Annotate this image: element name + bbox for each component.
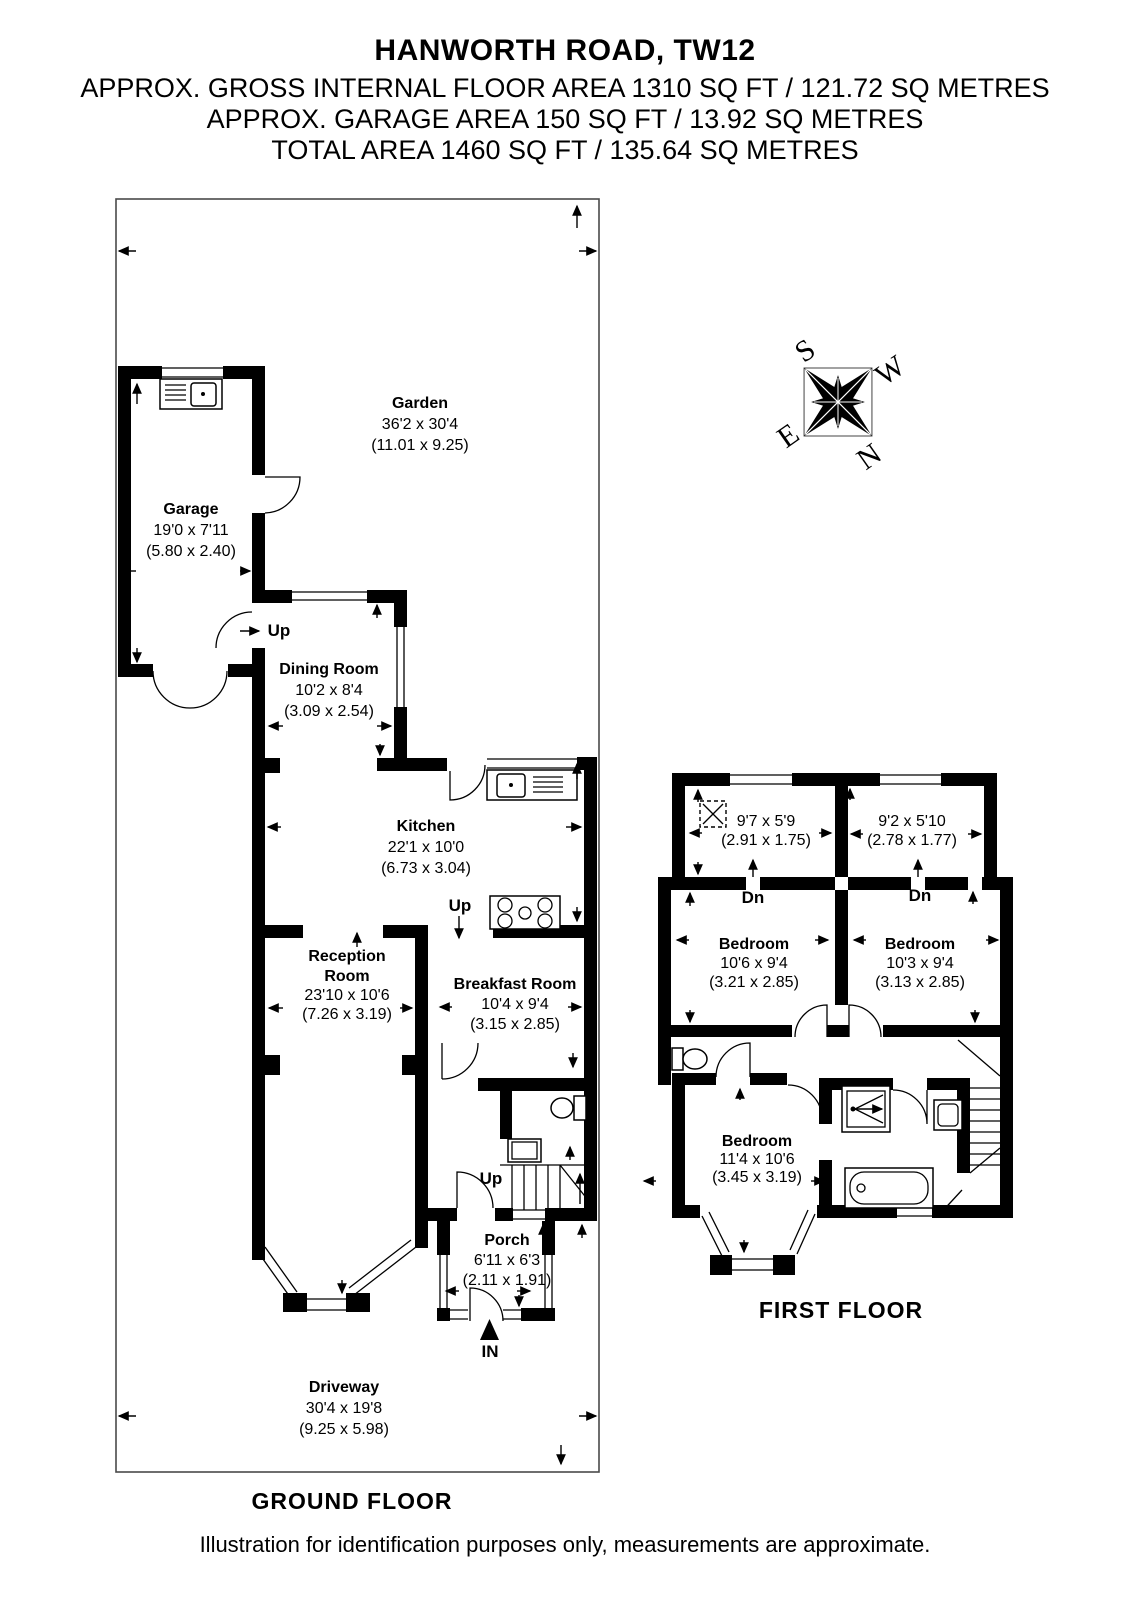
loft-right-dims-imperial: 9'2 x 5'10 bbox=[878, 813, 946, 830]
bedroom2-dims-imperial: 10'3 x 9'4 bbox=[886, 955, 954, 972]
bay-window-ground bbox=[252, 1240, 416, 1312]
compass-rose: S W E N bbox=[770, 332, 912, 476]
garage-dims-imperial: 19'0 x 7'11 bbox=[153, 522, 228, 539]
reception-room-dims-metric: (7.26 x 3.19) bbox=[302, 1006, 392, 1023]
loft-left-dims-imperial: 9'7 x 5'9 bbox=[737, 813, 796, 830]
bedroom2-dims-metric: (3.13 x 2.85) bbox=[875, 974, 965, 991]
first-floor-walls bbox=[658, 773, 1013, 1218]
header: HANWORTH ROAD, TW12 APPROX. GROSS INTERN… bbox=[80, 34, 1049, 165]
kitchen-sink-icon bbox=[487, 770, 577, 800]
garage-sink-icon bbox=[160, 379, 222, 409]
loft-right-dims-metric: (2.78 x 1.77) bbox=[867, 832, 957, 849]
porch-label: Porch bbox=[484, 1232, 529, 1249]
hallway-walls bbox=[442, 1043, 597, 1139]
page-title: HANWORTH ROAD, TW12 bbox=[374, 34, 755, 67]
garden-label: Garden bbox=[392, 395, 448, 412]
ground-floor-caption: GROUND FLOOR bbox=[251, 1488, 452, 1514]
bedroom2-label: Bedroom bbox=[885, 936, 955, 953]
reception-room-label-line2: Room bbox=[324, 968, 369, 985]
bay-window-first bbox=[702, 1210, 815, 1275]
reception-room-dims-imperial: 23'10 x 10'6 bbox=[304, 987, 389, 1004]
garage-dims-metric: (5.80 x 2.40) bbox=[146, 543, 236, 560]
garage-label: Garage bbox=[163, 501, 218, 518]
area-line-1: APPROX. GROSS INTERNAL FLOOR AREA 1310 S… bbox=[80, 73, 1049, 103]
first-floor-caption: FIRST FLOOR bbox=[759, 1297, 923, 1323]
bedroom1-label: Bedroom bbox=[719, 936, 789, 953]
floorplan-drawing: HANWORTH ROAD, TW12 APPROX. GROSS INTERN… bbox=[0, 0, 1131, 1600]
toilet-first-icon bbox=[672, 1048, 707, 1070]
dining-room-label: Dining Room bbox=[279, 661, 379, 678]
bedroom1-dims-metric: (3.21 x 2.85) bbox=[709, 974, 799, 991]
breakfast-room-dims-imperial: 10'4 x 9'4 bbox=[481, 996, 549, 1013]
bathtub-icon bbox=[845, 1168, 933, 1208]
compass-west-label: W bbox=[869, 349, 912, 393]
skylight-icon bbox=[700, 801, 726, 827]
cloakroom-sink-icon bbox=[508, 1139, 541, 1162]
cooktop-icon bbox=[490, 896, 560, 929]
floorplan-page: HANWORTH ROAD, TW12 APPROX. GROSS INTERN… bbox=[0, 0, 1131, 1600]
breakfast-room-dims-metric: (3.15 x 2.85) bbox=[470, 1016, 560, 1033]
bedroom3-label: Bedroom bbox=[722, 1133, 792, 1150]
dn-label-left: Dn bbox=[742, 888, 765, 907]
area-line-3: TOTAL AREA 1460 SQ FT / 135.64 SQ METRES bbox=[271, 135, 858, 165]
dn-label-right: Dn bbox=[909, 886, 932, 905]
disclaimer-text: Illustration for identification purposes… bbox=[200, 1532, 931, 1557]
compass-south-label: S bbox=[789, 332, 822, 369]
loft-left-dims-metric: (2.91 x 1.75) bbox=[721, 832, 811, 849]
first-floor-plan bbox=[644, 773, 1013, 1275]
up-label-kitchen: Up bbox=[449, 896, 472, 915]
entrance-arrow-icon bbox=[480, 1319, 499, 1340]
dining-room-dims-imperial: 10'2 x 8'4 bbox=[295, 682, 363, 699]
in-label: IN bbox=[482, 1342, 499, 1361]
dining-room-walls bbox=[260, 590, 447, 771]
compass-east-label: E bbox=[771, 417, 805, 455]
kitchen-dims-metric: (6.73 x 3.04) bbox=[381, 860, 471, 877]
driveway-dims-metric: (9.25 x 5.98) bbox=[299, 1421, 389, 1438]
kitchen-label: Kitchen bbox=[397, 818, 456, 835]
up-label-garage: Up bbox=[268, 621, 291, 640]
up-label-stairs: Up bbox=[480, 1169, 503, 1188]
ground-stairs bbox=[500, 1165, 596, 1210]
reception-room-label-line1: Reception bbox=[308, 948, 385, 965]
bedroom3-dims-imperial: 11'4 x 10'6 bbox=[719, 1151, 794, 1168]
bedroom1-dims-imperial: 10'6 x 9'4 bbox=[720, 955, 788, 972]
shower-icon bbox=[842, 1086, 890, 1132]
breakfast-room-label: Breakfast Room bbox=[454, 976, 577, 993]
driveway-label: Driveway bbox=[309, 1379, 379, 1396]
toilet-icon bbox=[551, 1096, 586, 1120]
compass-north-label: N bbox=[851, 437, 888, 476]
porch-dims-imperial: 6'11 x 6'3 bbox=[474, 1252, 540, 1269]
garden-dims-metric: (11.01 x 9.25) bbox=[371, 437, 469, 454]
driveway-dims-imperial: 30'4 x 19'8 bbox=[306, 1400, 382, 1417]
area-line-2: APPROX. GARAGE AREA 150 SQ FT / 13.92 SQ… bbox=[207, 104, 924, 134]
kitchen-dims-imperial: 22'1 x 10'0 bbox=[388, 839, 464, 856]
bedroom3-dims-metric: (3.45 x 3.19) bbox=[712, 1169, 802, 1186]
dining-room-dims-metric: (3.09 x 2.54) bbox=[284, 703, 374, 720]
porch-dims-metric: (2.11 x 1.91) bbox=[463, 1272, 552, 1289]
garden-dims-imperial: 36'2 x 30'4 bbox=[382, 416, 458, 433]
bathroom-sink-icon bbox=[934, 1100, 962, 1130]
